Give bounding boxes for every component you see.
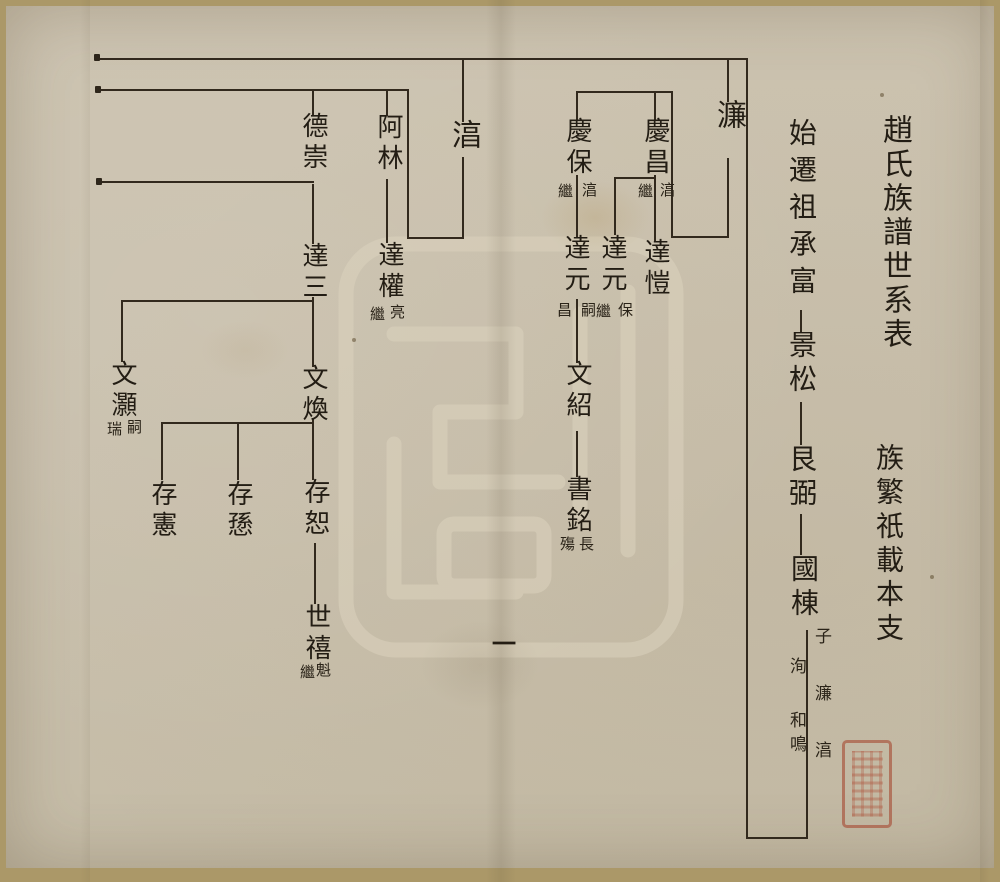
paper-speck [352,338,356,342]
tree-line [312,297,314,367]
person-name-alin: 阿林 [375,113,401,175]
annotation-shixi-right: 魁 [315,662,330,680]
tree-line [462,58,464,122]
person-name-wenhao: 文灝 [109,360,135,422]
tree-line [800,514,802,555]
page-number: 一 [492,624,516,659]
annotation-shuming-left: 殤 [559,536,574,554]
annotation-dayuan-chang-left: 繼 [595,303,610,321]
tree-line [806,630,808,839]
tree-line [576,91,673,93]
person-name-dechong: 德崇 [300,112,326,174]
person-name-dakai: 達愷 [642,238,668,300]
person-name-dasan: 達三 [300,242,326,304]
ancestor-start: 始遷祖承富 [787,118,815,303]
person-name-shuming: 書銘 [564,475,590,537]
annotation-wenhao-right: 嗣 [126,419,141,437]
tree-line [671,92,673,238]
ancestor-gen4: 國棟 [789,554,817,622]
person-name-cunxun: 存愻 [225,480,251,542]
branch-motto: 族繁祇載本支 [874,443,902,647]
tree-line [314,543,316,604]
tree-line [407,237,464,239]
tree-line [121,300,123,362]
tree-line [800,402,802,445]
tree-line [462,157,464,239]
annotation-daquan-right: 亮 [389,304,404,322]
person-name-wenhuan: 文煥 [300,364,326,426]
tree-line [312,418,314,480]
line-end-tick [94,54,100,61]
tree-line [746,58,748,839]
tree-line [161,422,163,480]
tree-line [671,236,729,238]
ancestor-gen2: 景松 [787,330,815,398]
tree-line [97,58,748,60]
tree-line [654,175,656,241]
tree-line [748,837,808,839]
tree-line [386,179,388,243]
ancestor-gen3: 艮弼 [787,444,815,512]
annotation-dayuan-bao-right: 嗣 [580,302,595,320]
tree-line [122,300,314,302]
page-edge-right [980,0,990,882]
tree-line [654,92,656,120]
person-name-shixi: 世禧 [303,603,329,665]
person-name-chun: 湻 [448,119,478,149]
person-name-dayuan-under-qingbao: 達元 [562,234,588,296]
scanned-genealogy-spread: { "document": { "title": "趙氏族譜世系表", "mot… [0,0,1000,882]
tree-line [800,310,802,332]
person-name-cunshu: 存恕 [302,478,328,540]
annotation-qingbao-left: 繼 [557,183,572,201]
tree-line [99,181,314,183]
person-name-dayuan-under-qingchang: 達元 [599,234,625,296]
tree-line [97,89,409,91]
line-end-tick [96,178,102,185]
sons-note-left: 洵 [787,657,804,674]
sons-note-left: 和鳴 [787,711,804,759]
annotation-wenhao-left: 瑞 [106,421,121,439]
annotation-qingchang-left: 繼 [637,183,652,201]
gutter-fold [486,0,516,882]
annotation-dayuan-chang-right: 保 [617,302,632,320]
person-name-qingchang: 慶昌 [642,117,668,179]
tree-line [727,58,729,102]
line-end-tick [95,86,101,93]
tree-line [576,431,578,477]
person-name-qingbao: 慶保 [564,117,590,179]
tree-line [576,92,578,120]
tree-line [614,177,616,235]
annotation-daquan-left: 繼 [369,306,384,324]
collection-seal [842,740,892,828]
person-name-lian: 濂 [713,99,743,129]
annotation-shixi-left: 繼 [299,664,314,682]
person-name-wenshao: 文紹 [564,360,590,422]
annotation-shuming-right: 長 [578,536,593,554]
person-name-daquan: 達權 [376,241,402,303]
tree-line [576,299,578,363]
page-title: 趙氏族譜世系表 [879,114,909,352]
annotation-dayuan-bao-left: 昌 [556,302,571,320]
tree-line [407,90,409,239]
paper-speck [880,93,884,97]
paper-speck [930,575,934,579]
tree-line [727,158,729,238]
page-edge-left [80,0,90,882]
tree-line [576,175,578,237]
annotation-qingchang-right: 湻 [659,182,674,200]
tree-line [312,184,314,244]
tree-line [237,422,239,480]
annotation-qingbao-right: 湻 [581,182,596,200]
person-name-cunxian: 存憲 [149,480,175,542]
sons-note-right: 子濂湻 [812,627,829,798]
